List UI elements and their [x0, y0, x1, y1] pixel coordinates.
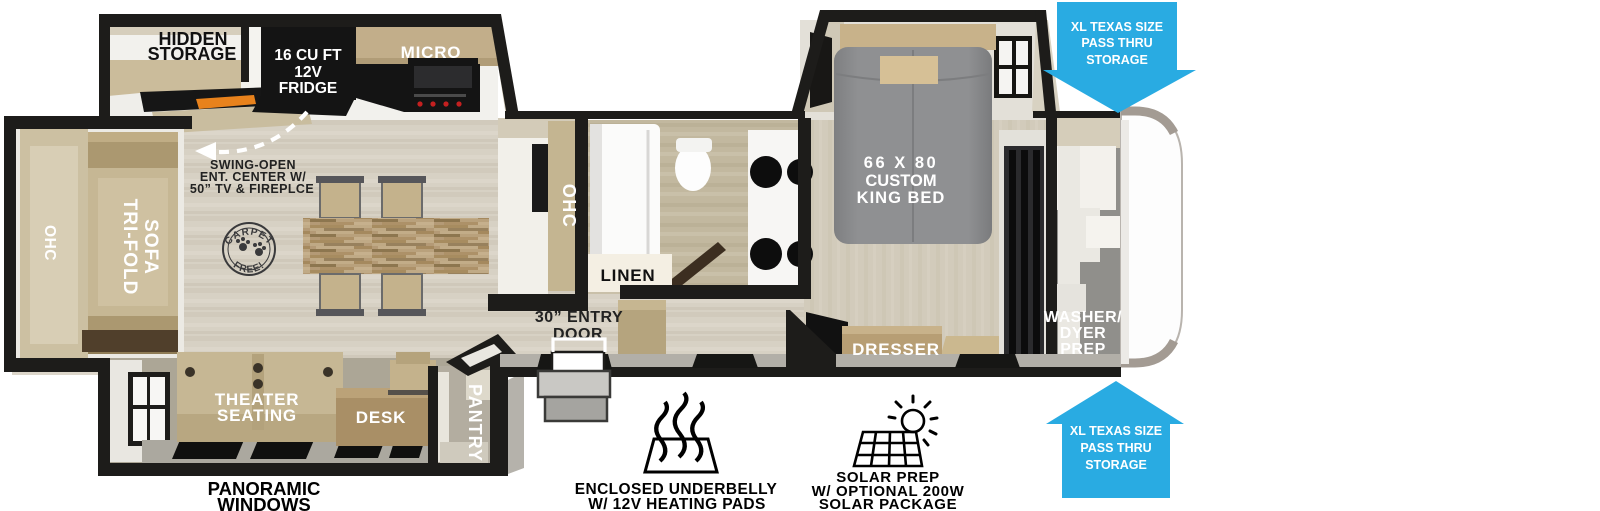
svg-text:30” ENTRY: 30” ENTRY: [535, 309, 623, 326]
svg-text:OHC: OHC: [41, 225, 58, 261]
svg-text:DRESSER: DRESSER: [852, 340, 940, 359]
svg-text:FRIDGE: FRIDGE: [279, 80, 338, 97]
svg-text:PREP: PREP: [1060, 341, 1106, 358]
svg-text:12V: 12V: [294, 64, 322, 81]
svg-text:DYER: DYER: [1060, 325, 1106, 342]
svg-text:DESK: DESK: [356, 408, 406, 427]
svg-text:W/ 12V HEATING PADS: W/ 12V HEATING PADS: [588, 496, 766, 511]
svg-text:XL TEXAS SIZE: XL TEXAS SIZE: [1071, 20, 1163, 34]
svg-text:PASS THRU: PASS THRU: [1081, 36, 1152, 50]
svg-text:16 CU FT: 16 CU FT: [274, 47, 342, 64]
svg-text:SOLAR PACKAGE: SOLAR PACKAGE: [819, 496, 957, 511]
svg-text:SEATING: SEATING: [217, 406, 297, 425]
svg-text:50” TV & FIREPLCE: 50” TV & FIREPLCE: [190, 182, 314, 196]
svg-text:XL TEXAS SIZE: XL TEXAS SIZE: [1070, 424, 1162, 438]
svg-text:STORAGE: STORAGE: [1085, 458, 1147, 472]
svg-text:MICRO: MICRO: [401, 43, 462, 62]
svg-text:OHC: OHC: [559, 184, 579, 229]
svg-text:KING BED: KING BED: [857, 189, 946, 207]
svg-text:TRI-FOLD: TRI-FOLD: [119, 199, 140, 296]
svg-text:PANTRY: PANTRY: [465, 384, 485, 462]
svg-text:LINEN: LINEN: [601, 266, 656, 285]
svg-text:WASHER/: WASHER/: [1044, 309, 1122, 326]
svg-text:SOFA: SOFA: [140, 219, 161, 275]
svg-text:STORAGE: STORAGE: [1086, 53, 1148, 67]
svg-text:PASS THRU: PASS THRU: [1080, 441, 1151, 455]
svg-text:WINDOWS: WINDOWS: [217, 494, 311, 511]
svg-text:CUSTOM: CUSTOM: [865, 172, 936, 190]
svg-text:66 X 80: 66 X 80: [864, 154, 938, 172]
svg-text:STORAGE: STORAGE: [148, 44, 237, 64]
